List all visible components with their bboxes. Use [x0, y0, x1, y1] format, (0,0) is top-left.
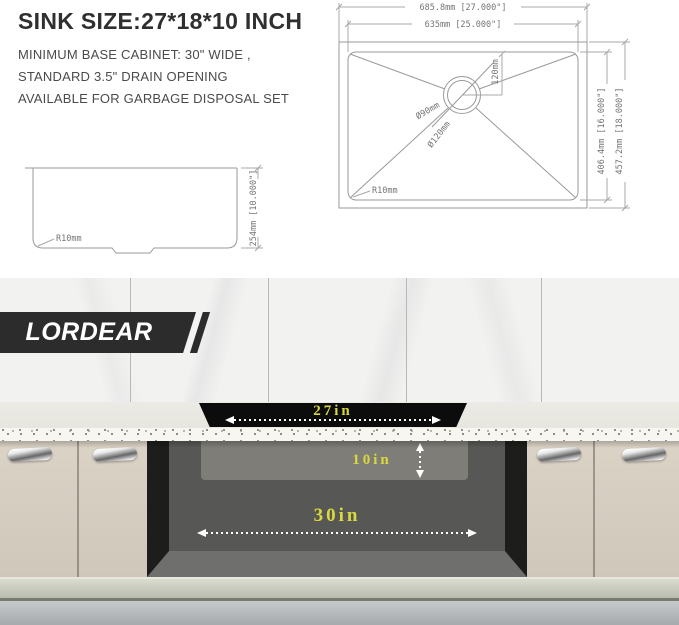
cabinet-handle [537, 447, 582, 462]
arrow-left-icon [225, 416, 234, 424]
dim-drain-inner-diameter: Ø90mm [414, 100, 442, 122]
cabinet-floor [147, 551, 527, 577]
cabinet-handle [93, 447, 138, 462]
tile-grout-line [268, 278, 269, 402]
cabinet-handle [622, 447, 667, 462]
cabinet-opening: 10in 30in [147, 441, 527, 577]
dim-overall-front-to-back: 457.2mm [18.000"] [615, 88, 625, 175]
toe-kick [0, 577, 679, 598]
kitchen-floor [0, 601, 679, 625]
dim-corner-radius: R10mm [372, 186, 398, 196]
dim-overall-width: 685.8mm [27.000"] [420, 3, 507, 13]
sink-width-arrow [225, 416, 441, 424]
brand-banner: LORDEAR [0, 312, 196, 353]
arrow-left-icon [197, 529, 206, 537]
arrow-down-icon [416, 470, 424, 478]
cabinet-row: 10in 30in [0, 441, 679, 577]
dotted-line [234, 419, 432, 421]
dim-drain-offset: 120mm [491, 59, 501, 85]
cabinet-width-label: 30in [147, 505, 527, 527]
dim-basin-width: 635mm [25.000"] [425, 20, 502, 30]
cabinet-handle [8, 447, 53, 462]
product-image: SINK SIZE:27*18*10 INCH MINIMUM BASE CAB… [0, 0, 679, 625]
door-gap [593, 441, 595, 577]
sink-cutout: 27in [199, 403, 467, 427]
arrow-right-icon [432, 416, 441, 424]
dim-basin-front-to-back: 406.4mm [16.000"] [597, 88, 607, 175]
door-gap [77, 441, 79, 577]
side-view-labels: R10mm 254mm [10.000"] [56, 170, 259, 247]
brand-logo-text: LORDEAR [0, 318, 178, 347]
top-view-drawing [339, 42, 587, 208]
tile-grout-line [406, 278, 407, 402]
dim-drain-outer-diameter: Ø120mm [425, 119, 453, 150]
sink-depth-label: 10in [327, 452, 417, 469]
dotted-line [206, 532, 468, 534]
arrow-right-icon [468, 529, 477, 537]
cabinet-width-arrow [197, 529, 477, 537]
side-dim-depth: 254mm [10.000"] [249, 170, 259, 247]
kitchen-scene: LORDEAR 27in 10in [0, 278, 679, 625]
spec-section: SINK SIZE:27*18*10 INCH MINIMUM BASE CAB… [0, 0, 679, 278]
top-view-dimension-lines [336, 3, 630, 211]
countertop-edge [0, 428, 679, 442]
side-dim-corner-radius: R10mm [56, 234, 82, 244]
technical-drawing: 685.8mm [27.000"] 635mm [25.000"] 406.4m… [0, 0, 679, 278]
dotted-line [419, 451, 421, 470]
sink-depth-arrow [416, 443, 424, 478]
tile-grout-line [541, 278, 542, 402]
